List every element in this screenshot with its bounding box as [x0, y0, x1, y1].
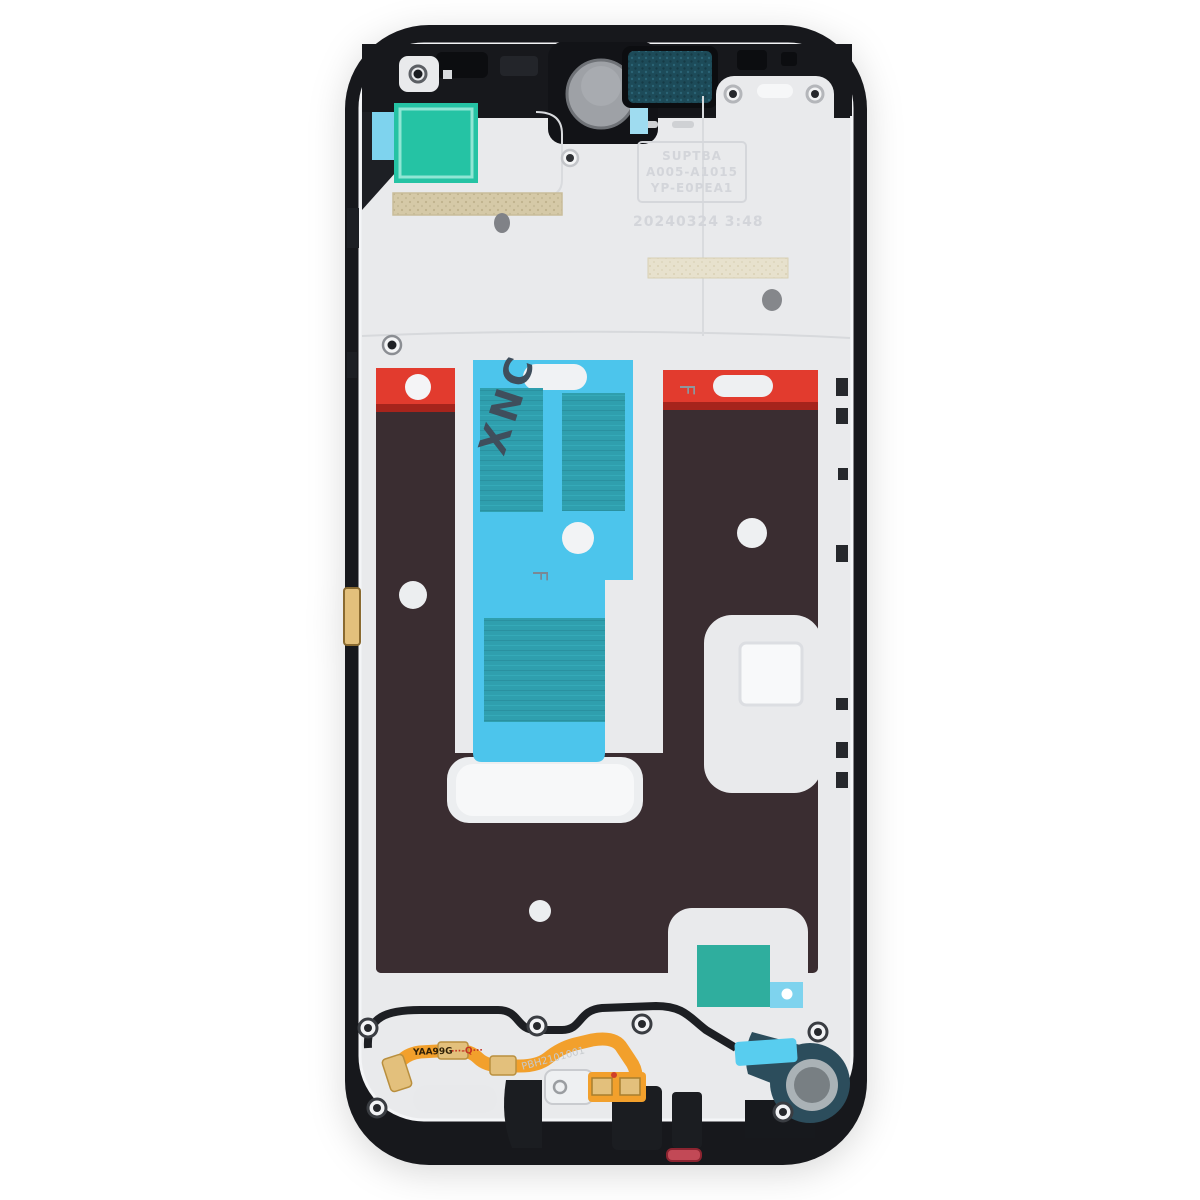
rail-notch-left-2: [347, 352, 357, 378]
red-strip-right-hole: [713, 375, 773, 397]
adhesive-pad-teal-small: [697, 945, 770, 1007]
embossed-line-2: A005-A1015: [646, 165, 738, 179]
small-cutout-right-2: [781, 52, 797, 66]
antenna-mesh-left: [393, 193, 562, 215]
screw-bottom-2: [528, 1017, 546, 1035]
red-strip-left-edge: [376, 404, 455, 412]
antenna-mesh-right: [648, 258, 788, 278]
sim-contact-pad: [344, 588, 360, 645]
flex-pad-3: [490, 1056, 516, 1075]
gasket-ring-center: [794, 1067, 830, 1103]
product-photo: SUPTBA A005-A1015 YP-E0PEA1 20240324 3:4…: [0, 0, 1200, 1200]
screw-plate-center: [562, 150, 578, 166]
screw-bottom-1: [359, 1019, 377, 1037]
adhesive-cyan-bottom: [734, 1038, 798, 1066]
power-button-flex: [545, 1070, 646, 1104]
screw-plate-left: [383, 336, 401, 354]
band-recess: [500, 56, 538, 76]
bottom-white-pill: [413, 1085, 497, 1113]
adhesive-tab-hole: [782, 989, 793, 1000]
rail-notch-7: [836, 772, 848, 788]
screw-bottom-6: [774, 1103, 792, 1121]
bottom-right-cutout: [668, 908, 808, 1020]
brown-left-hole: [399, 581, 427, 609]
screw-bottom-5: [368, 1099, 386, 1117]
power-flex-bracket: [545, 1070, 593, 1104]
f-marking-center: F: [528, 570, 552, 582]
screw-boss-2: [762, 289, 782, 311]
rail-notch-3: [838, 468, 848, 480]
f-marking-right: F: [675, 384, 699, 396]
brown-right-hole: [737, 518, 767, 548]
embossed-line-1: SUPTBA: [662, 149, 722, 163]
rail-notch-left-1: [347, 208, 359, 248]
rail-notch-2: [836, 408, 848, 424]
bottom-slot-cutout: [447, 757, 643, 823]
bottom-block-3: [672, 1092, 702, 1148]
rail-notch-1: [836, 378, 848, 396]
rail-notch-6: [836, 742, 848, 758]
screw-bottom-3: [633, 1015, 651, 1033]
adhesive-sliver-cyan: [630, 108, 648, 134]
fingerprint-window-cutout: [704, 615, 822, 793]
teal-patch-3: [484, 618, 605, 722]
power-flex-dot: [611, 1072, 617, 1078]
cyan-strip-hole: [562, 522, 594, 554]
power-pad-2: [620, 1078, 640, 1095]
flex-code-suffix: ···-Q···: [451, 1046, 483, 1057]
bottom-block-1: [504, 1080, 542, 1148]
bottom-red-element: [667, 1149, 701, 1161]
rail-notch-4: [836, 545, 848, 562]
teal-patch-2: [562, 393, 625, 511]
small-cutout-right: [737, 50, 767, 70]
brown-bottom-hole: [529, 900, 551, 922]
embossed-line-3: YP-E0PEA1: [650, 181, 733, 195]
embossed-date-stamp: 20240324 3:48: [633, 214, 764, 230]
flex-code-prefix: YAA99G: [412, 1047, 453, 1058]
red-strip-right-edge: [663, 402, 818, 410]
phone-midframe: SUPTBA A005-A1015 YP-E0PEA1 20240324 3:4…: [344, 25, 867, 1165]
adhesive-pad-teal: [394, 103, 478, 183]
power-pad-1: [592, 1078, 612, 1095]
screw-boss-1: [494, 213, 510, 233]
band-dash-2: [672, 121, 694, 128]
screw-bottom-4: [809, 1023, 827, 1041]
rail-notch-5: [836, 698, 848, 710]
midframe-illustration: SUPTBA A005-A1015 YP-E0PEA1 20240324 3:4…: [0, 0, 1200, 1200]
red-strip-left-hole: [405, 374, 431, 400]
